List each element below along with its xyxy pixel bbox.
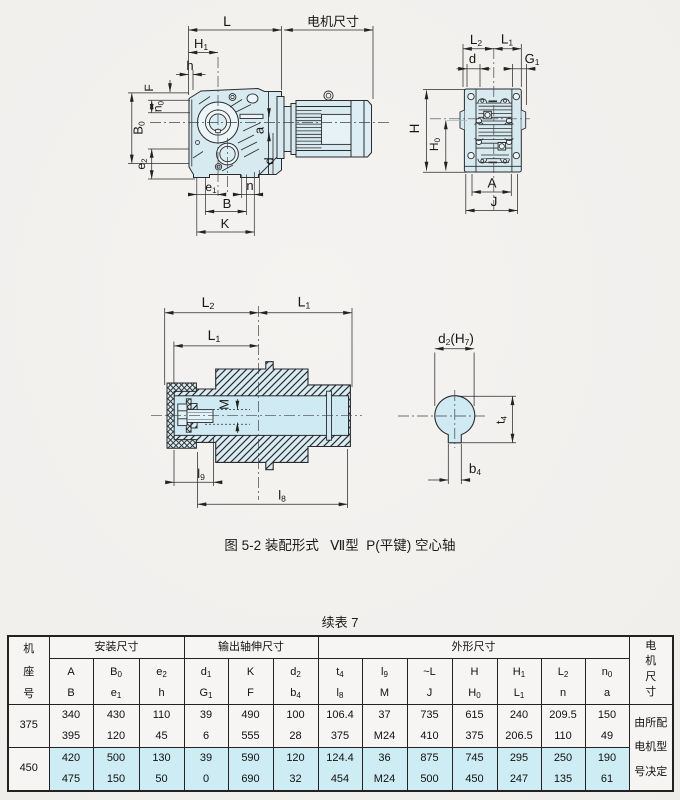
- svg-text:F: F: [142, 84, 156, 91]
- svg-text:L: L: [223, 13, 231, 29]
- svg-text:e1: e1: [205, 180, 217, 195]
- svg-text:L2: L2: [202, 294, 215, 311]
- svg-text:h: h: [186, 58, 193, 73]
- svg-text:L1: L1: [298, 294, 311, 311]
- svg-text:d: d: [262, 157, 277, 164]
- svg-text:M: M: [217, 399, 232, 410]
- svg-text:L1: L1: [501, 32, 514, 48]
- svg-text:G1: G1: [525, 51, 540, 67]
- svg-text:H: H: [407, 124, 422, 134]
- svg-text:d: d: [469, 51, 476, 66]
- svg-text:L2: L2: [470, 32, 483, 48]
- svg-text:B: B: [223, 196, 232, 211]
- svg-text:电机尺寸: 电机尺寸: [307, 14, 359, 29]
- svg-text:l8: l8: [278, 488, 286, 504]
- svg-text:a: a: [252, 126, 267, 134]
- svg-text:B0: B0: [131, 121, 147, 135]
- svg-text:d2(H7): d2(H7): [438, 331, 474, 347]
- svg-text:A: A: [487, 176, 496, 191]
- svg-text:H1: H1: [194, 36, 208, 52]
- svg-text:H0: H0: [427, 137, 442, 151]
- svg-text:K: K: [221, 216, 230, 231]
- svg-text:n0: n0: [151, 100, 166, 112]
- svg-text:l9: l9: [197, 466, 205, 482]
- svg-text:t4: t4: [494, 415, 509, 423]
- svg-text:e2: e2: [134, 158, 149, 170]
- svg-text:b4: b4: [469, 461, 482, 477]
- svg-text:J: J: [491, 194, 498, 209]
- svg-text:n: n: [246, 178, 253, 193]
- svg-text:L1: L1: [208, 327, 221, 344]
